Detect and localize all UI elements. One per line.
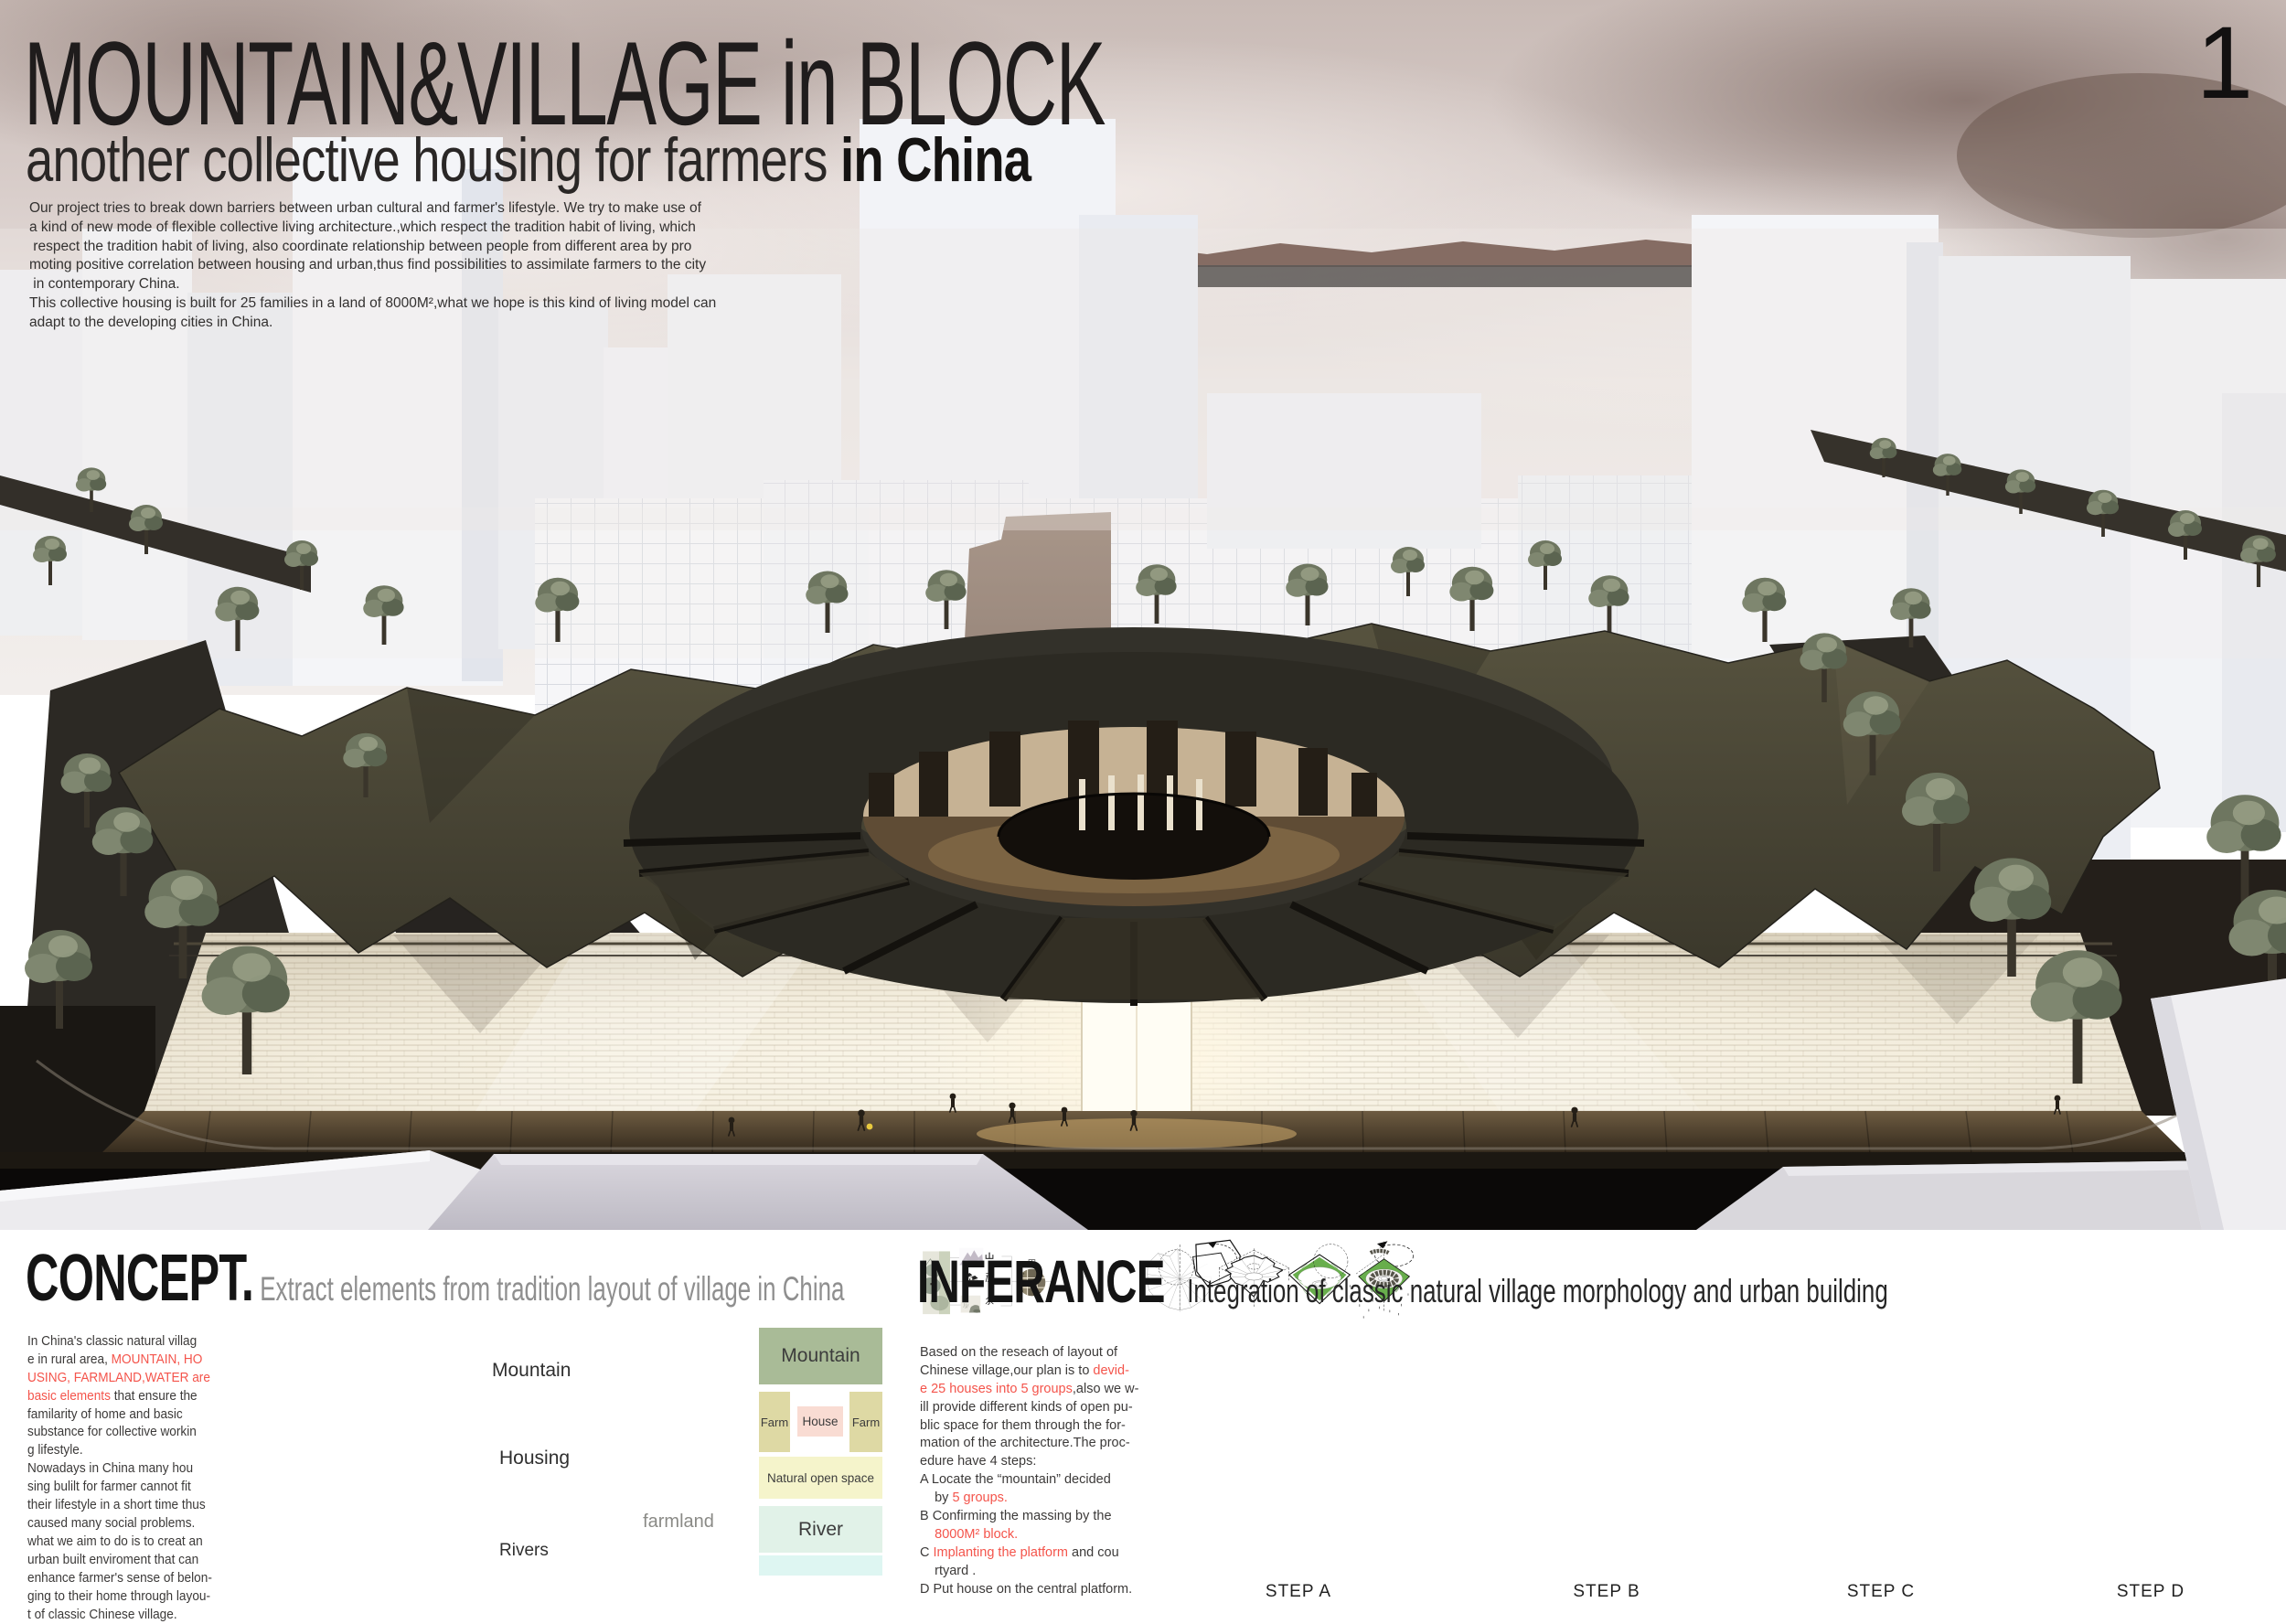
intro-paragraph: Our project tries to break down barriers…: [29, 199, 788, 333]
inference-subheading: Integration of classic natural village m…: [1187, 1272, 1888, 1309]
inference-body: Based on the reseach of layout of Chines…: [920, 1326, 1185, 1599]
element-label-mountain: Mountain: [492, 1360, 571, 1382]
inference-body-text: C: [920, 1545, 934, 1560]
block-mountain: Mountain: [759, 1328, 882, 1384]
page-subtitle: another collective housing for farmers i…: [26, 124, 1282, 196]
concept-heading: CONCEPT.: [26, 1242, 253, 1315]
inference-body-red: 8000M² block.: [935, 1527, 1018, 1542]
inference-header: INFERANCEIntegration of classic natural …: [917, 1246, 2266, 1316]
block-river: River: [759, 1506, 882, 1553]
farmland-label: farmland: [643, 1512, 714, 1533]
subtitle-emphasis: in China: [840, 125, 1031, 195]
step-d-label: STEP D: [2117, 1582, 2185, 1602]
concept-body: In China's classic natural villag e in r…: [27, 1315, 234, 1624]
element-label-rivers: Rivers: [499, 1541, 549, 1561]
inference-heading: INFERANCE: [917, 1247, 1165, 1315]
step-a-label: STEP A: [1266, 1582, 1331, 1602]
concept-body-text: that ensure the familarity of home and b…: [27, 1389, 212, 1622]
concept-subheading: Extract elements from tradition layout o…: [260, 1270, 844, 1308]
light-pool: [977, 1118, 1297, 1149]
step-b-label: STEP B: [1573, 1582, 1640, 1602]
block-open-space: Natural open space: [759, 1457, 882, 1499]
subtitle-text: another collective housing for farmers: [26, 125, 840, 195]
inference-body-text: ,also we w- ill provide different kinds …: [920, 1382, 1138, 1505]
page-number: 1: [2196, 4, 2253, 122]
block-river-light: [759, 1555, 882, 1576]
block-farm-left: Farm: [759, 1392, 790, 1452]
inference-body-red: 5 groups.: [952, 1490, 1007, 1505]
footer-panel: CONCEPT.Extract elements from tradition …: [0, 1230, 2286, 1617]
inference-body-text: Based on the reseach of layout of Chines…: [920, 1345, 1117, 1378]
block-house: House: [797, 1406, 843, 1437]
block-farm-right: Farm: [849, 1392, 882, 1452]
element-label-housing: Housing: [499, 1448, 570, 1469]
inference-body-red: Implanting the platform: [934, 1545, 1069, 1560]
step-c-label: STEP C: [1847, 1582, 1915, 1602]
